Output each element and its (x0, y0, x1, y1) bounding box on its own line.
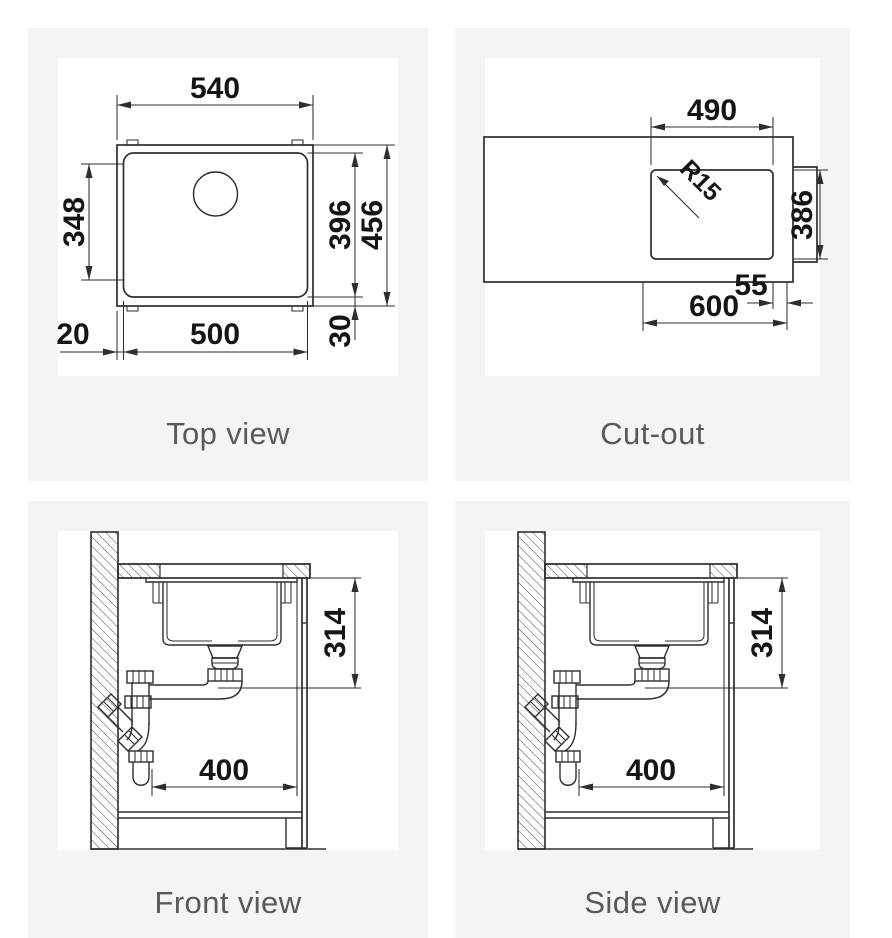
panel-front-view: 314 400 Front view (28, 501, 428, 938)
panel-title-front-view: Front view (28, 885, 428, 921)
dim-outer-width-label: 540 (190, 72, 240, 105)
dim-min-cabinet-width-label: 400 (626, 754, 676, 787)
top-view-drawing: 540 348 396 456 30 500 2 (28, 28, 428, 481)
panel-title-cut-out: Cut-out (455, 416, 850, 452)
spec-sheet: { "colors": { "page_bg": "#ffffff", "pan… (0, 0, 892, 938)
dim-left-offset-label: 20 (56, 318, 89, 351)
dim-side-offset-label: 55 (734, 269, 767, 302)
panel-side-view: 314 400 Side view (455, 501, 850, 938)
dim-min-cabinet-width-label: 400 (199, 754, 249, 787)
dim-inner-width-label: 500 (190, 318, 240, 351)
dim-bowl-depth-inner-label: 348 (58, 197, 91, 247)
panel-title-top-view: Top view (28, 416, 428, 452)
front-view-drawing: 314 400 (28, 501, 428, 938)
dim-bowl-depth-label: 396 (324, 200, 357, 250)
dim-bottom-offset-label: 30 (324, 314, 357, 347)
cut-out-drawing: 490 R15 386 55 600 (455, 28, 850, 481)
dim-cutout-width-label: 490 (687, 94, 737, 127)
dim-drain-height-label: 314 (746, 608, 779, 658)
panel-title-side-view: Side view (455, 885, 850, 921)
panel-cut-out: 490 R15 386 55 600 Cut-out (455, 28, 850, 481)
dim-outer-depth-label: 456 (356, 200, 389, 250)
panel-top-view: 540 348 396 456 30 500 2 (28, 28, 428, 481)
dim-drain-height-label: 314 (319, 608, 352, 658)
dim-cabinet-width-label: 600 (689, 290, 739, 323)
side-view-drawing: 314 400 (455, 501, 850, 938)
dim-cutout-depth-label: 386 (786, 190, 819, 240)
